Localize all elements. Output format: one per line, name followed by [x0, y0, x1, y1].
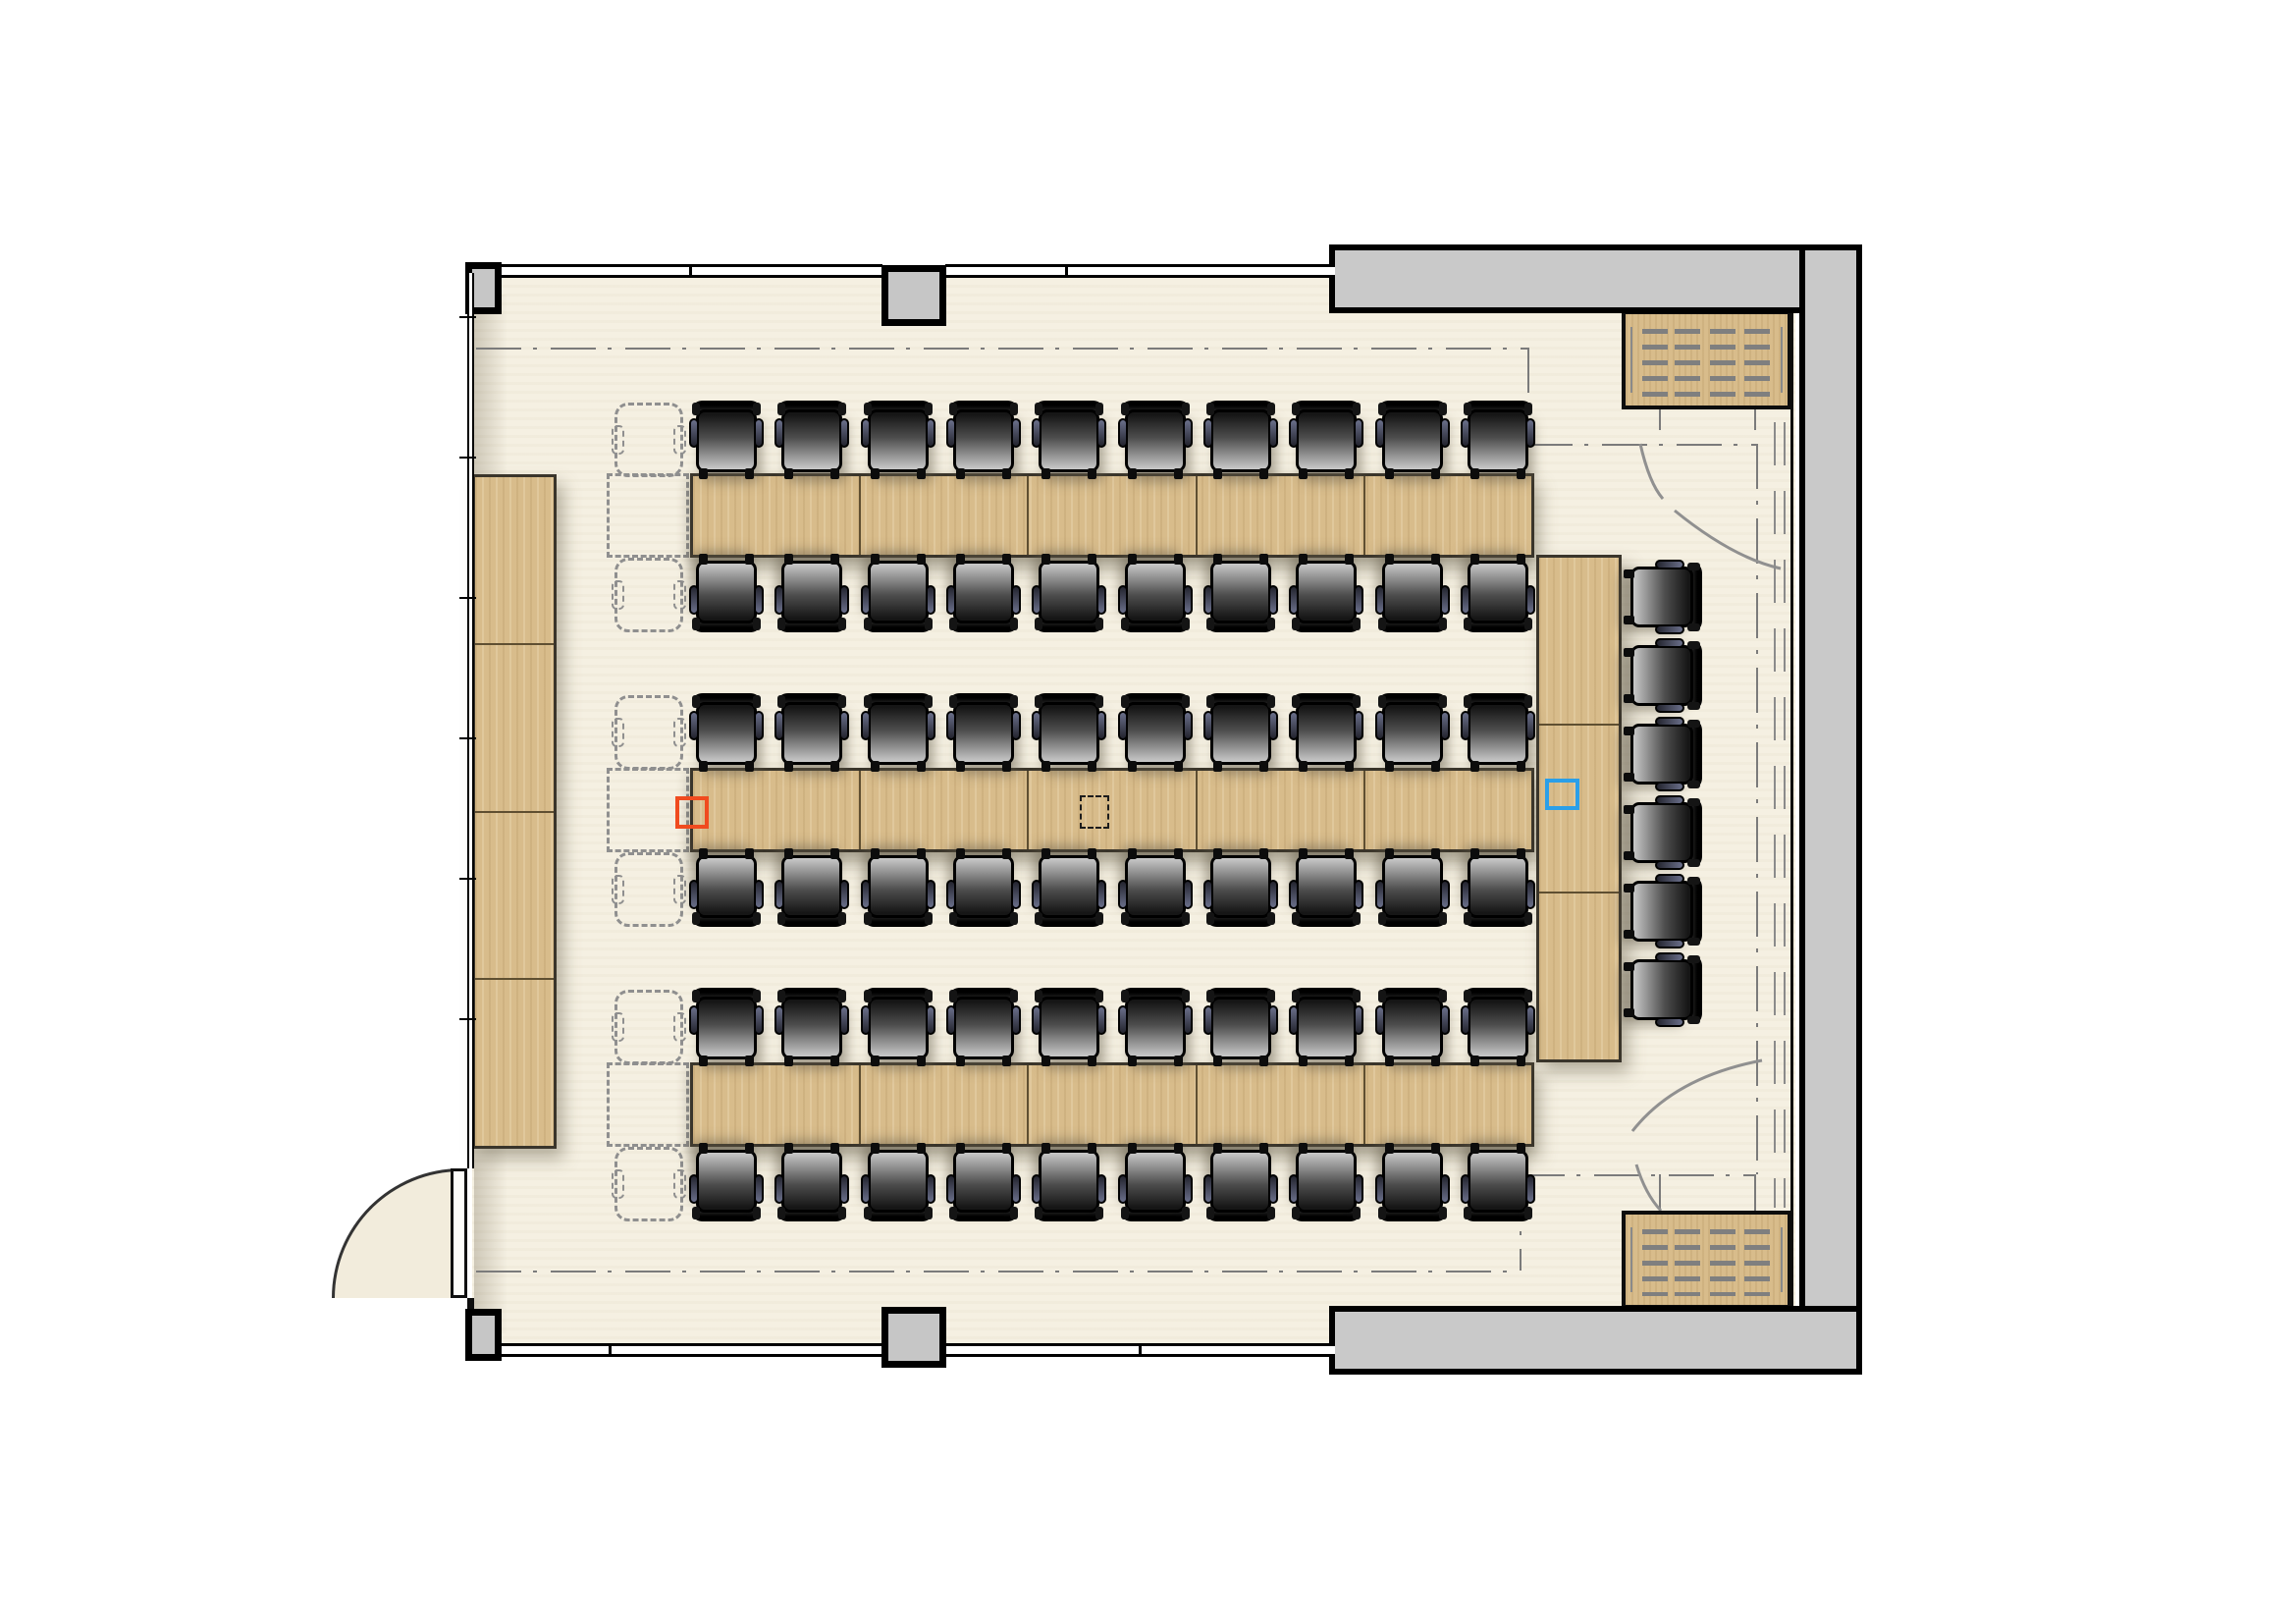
chair-seat [696, 409, 757, 472]
ghost-chair [614, 403, 683, 477]
chair-armrest-tip [1378, 990, 1386, 1002]
chair [690, 401, 763, 477]
wall-tick [459, 878, 476, 880]
chair-caster [784, 848, 793, 859]
chair [1119, 401, 1192, 477]
chair-armrest [1655, 703, 1684, 713]
chair [1376, 693, 1449, 770]
chair-armrest-tip [692, 695, 700, 708]
chair [947, 988, 1020, 1064]
chair-armrest-tip [753, 695, 761, 708]
table-row [690, 1062, 1534, 1147]
chair-armrest-tip [949, 618, 957, 630]
chair-armrest [754, 880, 764, 909]
chair-caster [1128, 554, 1137, 565]
chair-caster [1174, 468, 1183, 479]
chair-caster [699, 761, 708, 772]
chair-caster [699, 1143, 708, 1154]
chair-armrest [1461, 418, 1470, 448]
chair-seat [1210, 1150, 1271, 1213]
chair-caster [1345, 848, 1354, 859]
chair-armrest [1203, 880, 1213, 909]
chair-caster [1213, 468, 1222, 479]
chair-armrest [1011, 880, 1021, 909]
chair-armrest [861, 1174, 871, 1204]
partition-track-dashes [1774, 422, 1776, 1208]
chair [862, 988, 934, 1064]
chair-seat [696, 1150, 757, 1213]
chair [1204, 1145, 1277, 1221]
chair-armrest [1118, 880, 1128, 909]
chair-armrest-tip [925, 990, 933, 1002]
chair-caster [699, 1056, 708, 1066]
chair-armrest-tip [1267, 403, 1275, 415]
chair-armrest [774, 585, 784, 615]
table-segment [1363, 771, 1531, 849]
chair [775, 401, 848, 477]
ghost-chair [614, 1147, 683, 1221]
boundary-dashdot-line [476, 1271, 1520, 1272]
chair-armrest [689, 880, 699, 909]
wall-tick [459, 597, 476, 599]
chair-armrest [1268, 1174, 1278, 1204]
chair-caster [917, 761, 926, 772]
chair-caster [1345, 761, 1354, 772]
chair-seat [1468, 997, 1528, 1059]
chair-armrest [1032, 711, 1041, 740]
chair-caster [1002, 1056, 1011, 1066]
chair-caster [1385, 761, 1394, 772]
chair-armrest-tip [1687, 798, 1700, 806]
chair-caster [871, 554, 880, 565]
chair-armrest-tip [949, 403, 957, 415]
chair-seat [781, 997, 842, 1059]
chair-armrest [946, 585, 956, 615]
chair-armrest [1440, 711, 1450, 740]
chair-caster [917, 468, 926, 479]
chair-caster [1041, 761, 1050, 772]
chair-armrest-tip [1206, 695, 1214, 708]
ghost-armrest [673, 1169, 686, 1199]
chair-armrest-tip [1206, 1207, 1214, 1219]
chair-caster [1088, 848, 1096, 859]
table-segment [1363, 476, 1531, 555]
chair [1033, 556, 1105, 632]
chair-seat [1296, 855, 1357, 918]
table-segment [1363, 1065, 1531, 1144]
chair-armrest-tip [1687, 1016, 1700, 1024]
chair-armrest-tip [1524, 990, 1532, 1002]
chair-armrest-tip [1010, 990, 1018, 1002]
table-segment [475, 978, 554, 1146]
chair-armrest-tip [1353, 912, 1361, 925]
chair [1376, 1145, 1449, 1221]
chair-armrest-tip [1353, 695, 1361, 708]
chair-seat [953, 561, 1014, 623]
chair [1376, 850, 1449, 927]
chair-armrest [1354, 1174, 1363, 1204]
chair-armrest [946, 1005, 956, 1035]
chair-armrest [1118, 1174, 1128, 1204]
chair-caster [1041, 468, 1050, 479]
table-segment [1027, 476, 1195, 555]
chair-armrest-tip [1206, 403, 1214, 415]
chair [775, 850, 848, 927]
chair-caster [1624, 884, 1634, 893]
chair-armrest-tip [838, 618, 846, 630]
chair-seat [1382, 855, 1443, 918]
chair-armrest-tip [838, 990, 846, 1002]
chair-armrest [946, 1174, 956, 1204]
chair-caster [1624, 727, 1634, 735]
chair-armrest [1655, 717, 1684, 727]
chair-caster [1174, 1143, 1183, 1154]
wall-tick [459, 1018, 476, 1020]
ghost-table-extension [607, 473, 689, 558]
chair-armrest-tip [925, 403, 933, 415]
chair-armrest [1461, 1005, 1470, 1035]
chair-caster [1624, 805, 1634, 814]
wall-gray-top [1329, 244, 1862, 313]
chair [1290, 401, 1362, 477]
chair-caster [956, 1143, 965, 1154]
chair-caster [1128, 468, 1137, 479]
chair-armrest-tip [1267, 1207, 1275, 1219]
chair-armrest [1268, 585, 1278, 615]
chair-seat [1210, 409, 1271, 472]
ghost-chair [614, 695, 683, 770]
chair [947, 693, 1020, 770]
chair-armrest-tip [1010, 1207, 1018, 1219]
partition-track-dashes [1784, 422, 1786, 1208]
chair-armrest-tip [753, 1207, 761, 1219]
chair [1462, 850, 1534, 927]
chair-armrest-tip [1439, 618, 1447, 630]
chair-armrest [1096, 1005, 1106, 1035]
chair-armrest-tip [1182, 990, 1190, 1002]
chair [1462, 1145, 1534, 1221]
chair-seat [1125, 1150, 1186, 1213]
chair-caster [1517, 761, 1525, 772]
marker-blue-square [1545, 779, 1579, 810]
chair-armrest-tip [753, 990, 761, 1002]
chair-caster [1128, 761, 1137, 772]
chair-armrest-tip [1292, 618, 1300, 630]
chair-armrest [1011, 418, 1021, 448]
table-row [690, 768, 1534, 852]
ghost-chair [614, 852, 683, 927]
chair-caster [1088, 1143, 1096, 1154]
chair-armrest [774, 711, 784, 740]
chair-armrest [774, 1005, 784, 1035]
chair [947, 556, 1020, 632]
chair [1290, 988, 1362, 1064]
chair [1033, 401, 1105, 477]
chair-seat [868, 561, 929, 623]
chair-armrest [861, 880, 871, 909]
chair-caster [1624, 616, 1634, 624]
chair-seat [953, 855, 1014, 918]
chair-armrest [754, 711, 764, 740]
chair-armrest [1289, 585, 1299, 615]
chair [1033, 693, 1105, 770]
chair-seat [1039, 702, 1099, 765]
chair-seat [1468, 409, 1528, 472]
ghost-armrest [673, 1012, 686, 1042]
chair-seat [1630, 724, 1693, 785]
chair-armrest [1032, 585, 1041, 615]
ghost-armrest [673, 718, 686, 747]
chair-armrest-tip [1378, 618, 1386, 630]
chair-seat [1382, 561, 1443, 623]
chair-caster [956, 848, 965, 859]
chair [1119, 1145, 1192, 1221]
chair-armrest [1183, 711, 1193, 740]
chair-caster [1470, 1143, 1479, 1154]
chair-seat [781, 702, 842, 765]
chair-armrest [946, 711, 956, 740]
chair-armrest [1268, 880, 1278, 909]
chair-armrest-tip [753, 912, 761, 925]
chair-armrest-tip [1524, 618, 1532, 630]
chair-armrest [1440, 585, 1450, 615]
chair-seat [953, 997, 1014, 1059]
chair-armrest [1655, 939, 1684, 948]
chair-caster [784, 761, 793, 772]
chair-armrest-tip [838, 403, 846, 415]
chair-armrest-tip [777, 695, 785, 708]
chair-armrest-tip [777, 1207, 785, 1219]
chair-armrest [689, 711, 699, 740]
chair [1033, 850, 1105, 927]
chair-seat [868, 702, 929, 765]
chair-caster [1299, 554, 1308, 565]
chair-caster [1174, 848, 1183, 859]
chair-armrest-tip [1439, 1207, 1447, 1219]
chair [1626, 718, 1702, 790]
chair-armrest [839, 1174, 849, 1204]
chair-caster [1174, 761, 1183, 772]
window-mullion [609, 1343, 612, 1357]
chair [690, 693, 763, 770]
chair-armrest [1183, 1174, 1193, 1204]
chair-caster [871, 761, 880, 772]
chair-armrest [1203, 711, 1213, 740]
ghost-armrest [612, 425, 624, 455]
chair-armrest-tip [925, 912, 933, 925]
chair [862, 850, 934, 927]
chair-seat [1382, 997, 1443, 1059]
chair-caster [1002, 761, 1011, 772]
chair [1204, 401, 1277, 477]
chair-caster [1624, 962, 1634, 971]
table-segment [1539, 892, 1619, 1059]
chair-armrest-tip [838, 912, 846, 925]
chair-seat [1382, 409, 1443, 472]
chair [1376, 556, 1449, 632]
chair-armrest-tip [864, 618, 872, 630]
wall-tick [459, 737, 476, 739]
chair-seat [1039, 997, 1099, 1059]
chair-armrest-tip [1687, 877, 1700, 885]
chair-caster [917, 1056, 926, 1066]
chair-caster [1213, 848, 1222, 859]
chair [1626, 639, 1702, 712]
chair-armrest-tip [1267, 618, 1275, 630]
chair-armrest [1375, 585, 1385, 615]
chair-armrest [754, 585, 764, 615]
chair-armrest [861, 418, 871, 448]
chair-caster [699, 554, 708, 565]
chair-armrest [839, 711, 849, 740]
chair-armrest [1096, 880, 1106, 909]
window-mullion [1139, 1343, 1142, 1357]
table-segment [1027, 771, 1195, 849]
chair-armrest-tip [925, 695, 933, 708]
chair-caster [830, 761, 839, 772]
chair-armrest [774, 880, 784, 909]
chair-armrest [926, 585, 935, 615]
table-row [690, 473, 1534, 558]
chair-armrest [1289, 418, 1299, 448]
chair-armrest [754, 1005, 764, 1035]
chair-armrest-tip [1121, 990, 1129, 1002]
chair-armrest-tip [1292, 403, 1300, 415]
ghost-armrest [673, 580, 686, 610]
table-segment [859, 771, 1027, 849]
chair-caster [917, 848, 926, 859]
chair-caster [1259, 848, 1268, 859]
chair [1376, 988, 1449, 1064]
chair-caster [1299, 1056, 1308, 1066]
chair-armrest [1655, 1017, 1684, 1027]
chair-armrest-tip [864, 403, 872, 415]
chair-caster [1259, 468, 1268, 479]
chair-armrest-tip [864, 912, 872, 925]
chair-seat [696, 561, 757, 623]
chair-armrest-tip [1464, 912, 1471, 925]
chair-caster [1259, 761, 1268, 772]
chair-armrest-tip [1035, 403, 1042, 415]
chair-armrest [1096, 1174, 1106, 1204]
chair-caster [1385, 554, 1394, 565]
chair-armrest-tip [1010, 912, 1018, 925]
chair-armrest-tip [1095, 403, 1103, 415]
chair-caster [1624, 648, 1634, 657]
chair-seat [781, 1150, 842, 1213]
chair-caster [871, 848, 880, 859]
chair-seat [953, 702, 1014, 765]
chair-armrest [1289, 1005, 1299, 1035]
chair [947, 1145, 1020, 1221]
chair-armrest-tip [1292, 1207, 1300, 1219]
marker-orange-square [675, 796, 709, 829]
chair-caster [1517, 848, 1525, 859]
chair-armrest-tip [753, 618, 761, 630]
chair-armrest [861, 711, 871, 740]
chair-armrest-tip [1267, 990, 1275, 1002]
chair-armrest-tip [1353, 403, 1361, 415]
chair-armrest-tip [1182, 403, 1190, 415]
column-bottom-middle [881, 1307, 946, 1368]
chair-armrest-tip [1687, 623, 1700, 631]
column-bottom-left [465, 1309, 502, 1361]
chair-caster [699, 848, 708, 859]
chair-armrest-tip [1524, 695, 1532, 708]
chair-armrest [1203, 418, 1213, 448]
chair-caster [1431, 1056, 1440, 1066]
chair-caster [956, 761, 965, 772]
chair [1204, 850, 1277, 927]
chair-armrest-tip [1524, 1207, 1532, 1219]
chair-caster [1259, 1056, 1268, 1066]
chair-caster [1213, 1143, 1222, 1154]
chair [862, 556, 934, 632]
chair-caster [917, 1143, 926, 1154]
chair-caster [1624, 773, 1634, 782]
chair-armrest-tip [1010, 618, 1018, 630]
chair-armrest-tip [864, 695, 872, 708]
chair-armrest-tip [1524, 912, 1532, 925]
chair-armrest-tip [1524, 403, 1532, 415]
chair-caster [1174, 1056, 1183, 1066]
chair-armrest [774, 418, 784, 448]
boundary-dashdot-line [1756, 444, 1758, 1174]
chair-armrest-tip [1035, 990, 1042, 1002]
chair-armrest [839, 585, 849, 615]
chair-caster [1431, 1143, 1440, 1154]
chair-seat [1125, 561, 1186, 623]
chair-caster [1002, 468, 1011, 479]
chair-caster [830, 468, 839, 479]
radiator-bottom-right [1622, 1211, 1791, 1309]
chair-armrest [1375, 418, 1385, 448]
chair-seat [868, 855, 929, 918]
chair-seat [1125, 409, 1186, 472]
chair-caster [1385, 848, 1394, 859]
chair-armrest [1461, 880, 1470, 909]
chair-caster [871, 468, 880, 479]
chair-armrest-tip [1182, 695, 1190, 708]
chair-armrest-tip [925, 1207, 933, 1219]
chair-caster [1517, 1056, 1525, 1066]
chair-armrest-tip [1439, 403, 1447, 415]
chair-armrest-tip [1464, 1207, 1471, 1219]
door-swing-arc [332, 1168, 461, 1298]
chair-armrest-tip [1095, 912, 1103, 925]
chair-caster [1259, 554, 1268, 565]
table-segment [693, 476, 859, 555]
chair-armrest [689, 1174, 699, 1204]
chair-armrest-tip [1464, 990, 1471, 1002]
chair-seat [1468, 702, 1528, 765]
chair-armrest-tip [777, 990, 785, 1002]
chair-caster [699, 468, 708, 479]
sideboard [472, 474, 557, 1149]
chair-caster [1088, 1056, 1096, 1066]
table-segment [1539, 558, 1619, 724]
chair-armrest [1289, 711, 1299, 740]
chair-caster [917, 554, 926, 565]
chair-armrest-tip [1687, 641, 1700, 649]
chair-armrest-tip [753, 403, 761, 415]
chair-armrest-tip [1687, 859, 1700, 867]
chair-armrest [1354, 1005, 1363, 1035]
chair-caster [1624, 694, 1634, 703]
chair-caster [1345, 468, 1354, 479]
glass-partition-line [1790, 307, 1793, 1308]
chair-seat [1630, 959, 1693, 1020]
